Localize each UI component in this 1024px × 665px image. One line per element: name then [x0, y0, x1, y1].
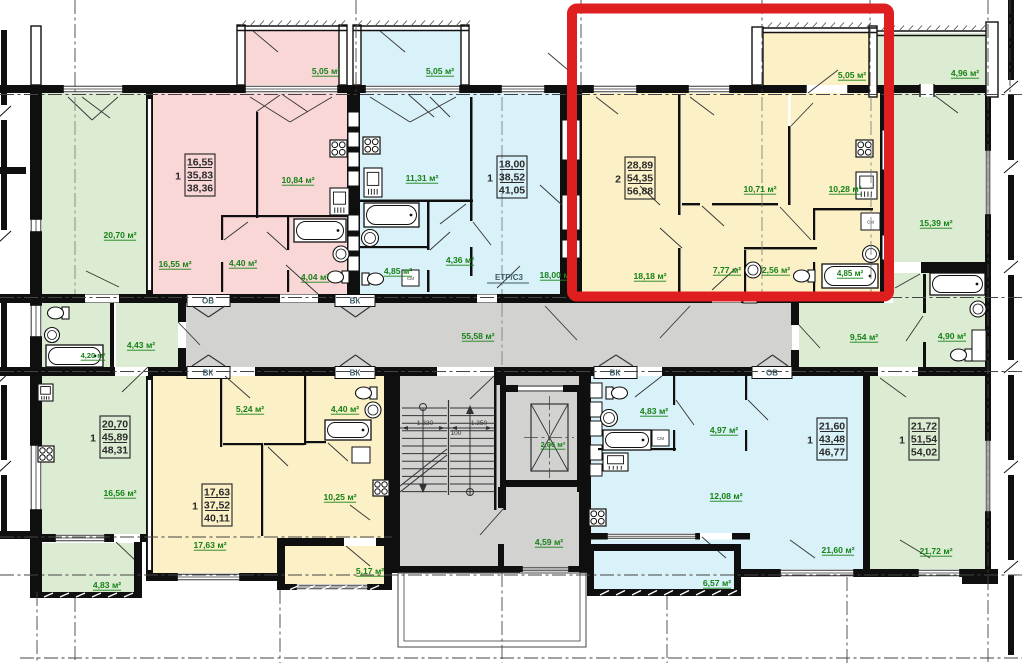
svg-text:9,54 м²: 9,54 м²: [850, 332, 878, 342]
svg-text:ЕТР/С3: ЕТР/С3: [495, 273, 524, 282]
svg-text:18,18 м²: 18,18 м²: [633, 271, 666, 281]
svg-text:1.330: 1.330: [417, 420, 434, 427]
svg-text:16,55: 16,55: [187, 157, 213, 169]
svg-text:4,59 м²: 4,59 м²: [535, 537, 563, 547]
svg-text:4,43 м²: 4,43 м²: [127, 340, 155, 350]
svg-text:38,52: 38,52: [499, 172, 525, 184]
svg-text:12,08 м²: 12,08 м²: [709, 491, 742, 501]
svg-text:16,56 м²: 16,56 м²: [103, 488, 136, 498]
svg-text:4,96 м²: 4,96 м²: [951, 68, 979, 78]
svg-text:2,56 м²: 2,56 м²: [762, 265, 790, 275]
svg-text:55,58 м²: 55,58 м²: [461, 331, 494, 341]
svg-text:5,05 м²: 5,05 м²: [312, 66, 340, 76]
svg-text:1: 1: [192, 501, 198, 513]
svg-text:20,70: 20,70: [102, 419, 128, 431]
svg-text:40,11: 40,11: [204, 513, 230, 525]
svg-text:21,72: 21,72: [911, 421, 937, 433]
svg-text:6,57 м²: 6,57 м²: [703, 578, 731, 588]
svg-text:ВК: ВК: [610, 369, 621, 378]
svg-text:1: 1: [175, 171, 181, 183]
svg-text:54,35: 54,35: [627, 173, 653, 185]
svg-text:1.350: 1.350: [471, 420, 488, 427]
svg-text:4,36 м²: 4,36 м²: [446, 255, 474, 265]
svg-text:38,36: 38,36: [187, 183, 213, 195]
svg-text:20,70 м²: 20,70 м²: [103, 230, 136, 240]
svg-text:5,24 м²: 5,24 м²: [236, 404, 264, 414]
svg-text:4,04 м²: 4,04 м²: [301, 272, 329, 282]
svg-text:1: 1: [90, 433, 96, 445]
svg-text:56,88: 56,88: [627, 186, 653, 198]
svg-text:CM: CM: [407, 276, 414, 281]
svg-text:1: 1: [807, 435, 813, 447]
svg-text:21,72 м²: 21,72 м²: [919, 546, 952, 556]
svg-text:4,40 м²: 4,40 м²: [331, 404, 359, 414]
svg-text:4,83 м²: 4,83 м²: [93, 580, 121, 590]
svg-text:5,05 м²: 5,05 м²: [426, 66, 454, 76]
svg-text:45,89: 45,89: [102, 432, 128, 444]
svg-text:18,00: 18,00: [499, 159, 525, 171]
svg-text:4,97 м²: 4,97 м²: [710, 425, 738, 435]
svg-text:16,55 м²: 16,55 м²: [158, 259, 191, 269]
svg-text:ОВ: ОВ: [766, 369, 778, 378]
svg-text:CM: CM: [657, 436, 664, 441]
svg-text:100: 100: [451, 430, 462, 437]
svg-text:4,20 м²: 4,20 м²: [81, 351, 106, 360]
svg-text:4,83 м²: 4,83 м²: [640, 406, 668, 416]
svg-text:4,85 м²: 4,85 м²: [837, 269, 864, 278]
svg-text:5,17 м²: 5,17 м²: [356, 566, 384, 576]
svg-text:7,77 м²: 7,77 м²: [713, 265, 741, 275]
svg-text:21,60 м²: 21,60 м²: [821, 545, 854, 555]
svg-text:11,31 м²: 11,31 м²: [406, 173, 439, 183]
svg-text:10,84 м²: 10,84 м²: [281, 175, 314, 185]
svg-text:28,89: 28,89: [627, 160, 653, 172]
svg-text:4,85 м²: 4,85 м²: [384, 266, 412, 276]
svg-text:ВК: ВК: [203, 369, 214, 378]
svg-text:43,48: 43,48: [819, 434, 845, 446]
svg-text:41,05: 41,05: [499, 185, 525, 197]
svg-text:48,31: 48,31: [102, 445, 128, 457]
svg-text:5,05 м²: 5,05 м²: [838, 70, 866, 80]
svg-text:15,39 м²: 15,39 м²: [919, 218, 952, 228]
svg-text:1: 1: [899, 435, 905, 447]
svg-text:17,63: 17,63: [204, 487, 230, 499]
svg-text:35,83: 35,83: [187, 170, 213, 182]
svg-text:51,54: 51,54: [911, 434, 937, 446]
svg-text:37,52: 37,52: [204, 500, 230, 512]
svg-text:10,71 м²: 10,71 м²: [743, 184, 776, 194]
svg-text:2,06 м²: 2,06 м²: [541, 440, 566, 449]
svg-text:54,02: 54,02: [911, 447, 937, 459]
svg-text:21,60: 21,60: [819, 421, 845, 433]
svg-text:ВК: ВК: [350, 369, 361, 378]
svg-text:4,40 м²: 4,40 м²: [229, 258, 257, 268]
svg-text:10,28 м²: 10,28 м²: [828, 184, 861, 194]
svg-text:10,25 м²: 10,25 м²: [323, 492, 356, 502]
svg-text:2: 2: [615, 174, 621, 186]
svg-text:4,90 м²: 4,90 м²: [938, 331, 966, 341]
svg-text:1: 1: [487, 173, 493, 185]
svg-text:17,63 м²: 17,63 м²: [193, 540, 226, 550]
svg-text:46,77: 46,77: [819, 447, 845, 459]
